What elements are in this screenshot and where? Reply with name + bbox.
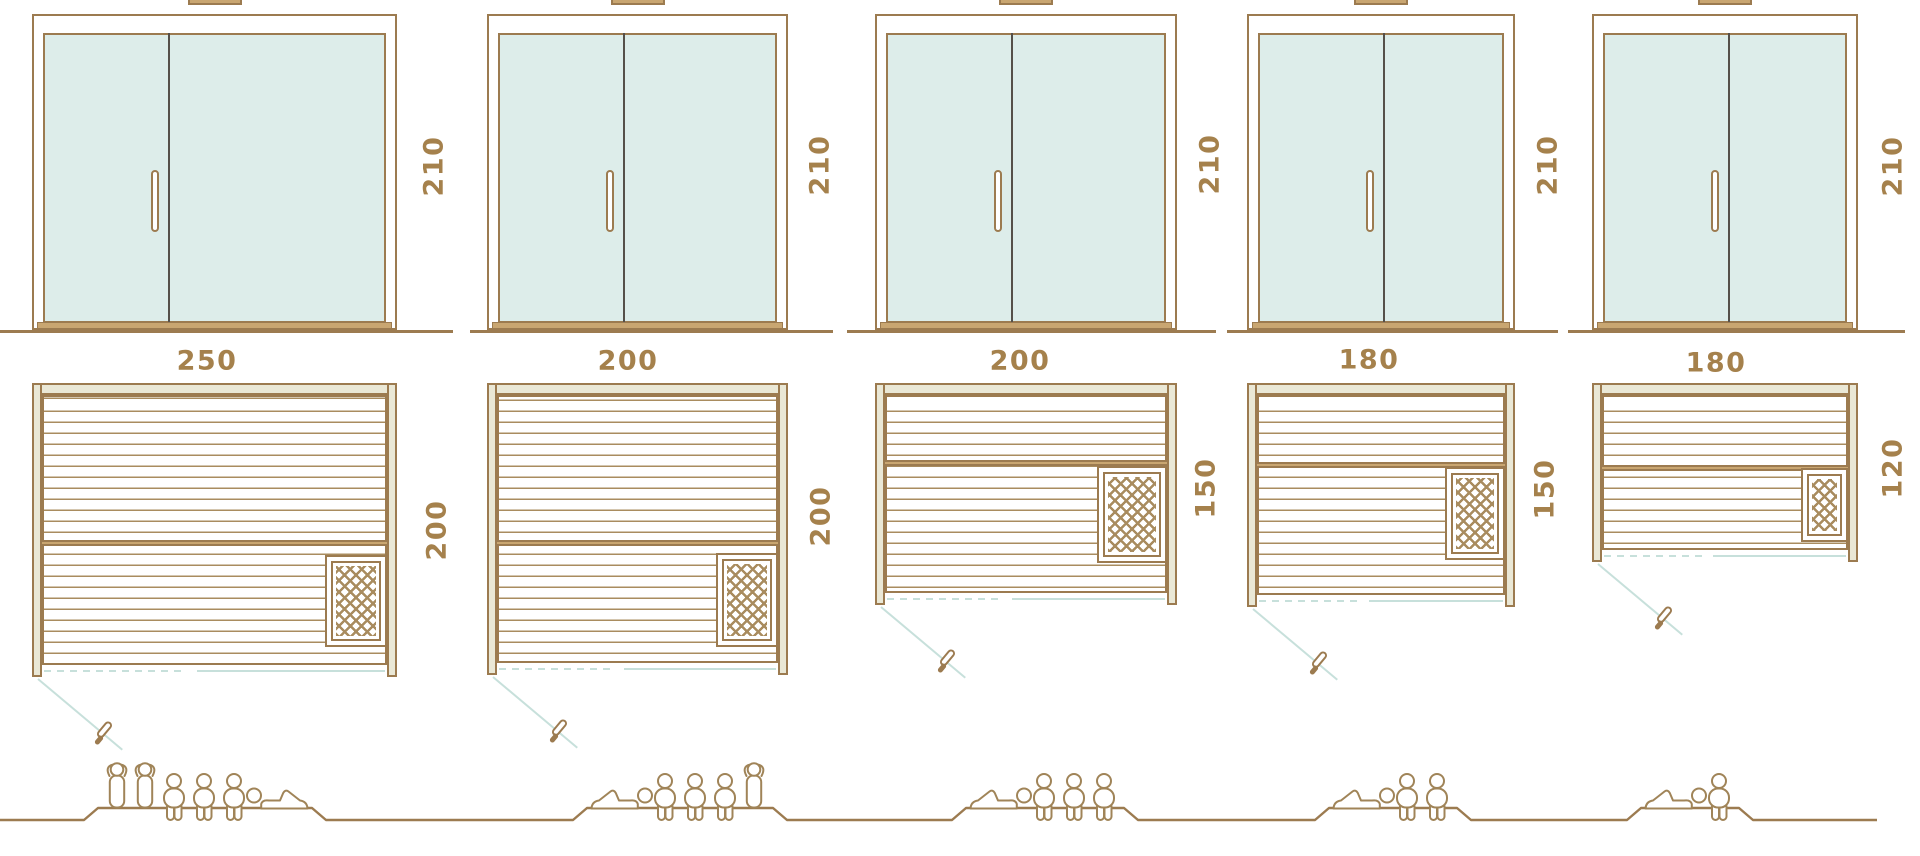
door-sill bbox=[37, 322, 392, 329]
door-leaf-divider bbox=[1011, 33, 1013, 323]
capacity-group-4-persons bbox=[845, 760, 1222, 856]
bench-edge bbox=[42, 540, 387, 546]
person-sitting-icon bbox=[164, 774, 184, 820]
capacity-group-6-persons bbox=[0, 760, 460, 856]
bench-edge bbox=[497, 540, 778, 546]
door-leaf-divider bbox=[1383, 33, 1385, 323]
plan-top-wall bbox=[32, 383, 397, 395]
handle-nub bbox=[1654, 620, 1664, 631]
plan-left-wall bbox=[32, 383, 42, 677]
door-height-label: 210 bbox=[1195, 134, 1226, 195]
person-standing-icon bbox=[745, 763, 764, 807]
door-leaf-divider bbox=[168, 33, 170, 323]
person-lying-icon bbox=[971, 789, 1032, 809]
door-glass bbox=[886, 33, 1166, 323]
door-opening-dashed bbox=[1604, 555, 1706, 557]
door-opening-dashed bbox=[44, 670, 187, 672]
plan-depth-label: 150 bbox=[1191, 458, 1222, 519]
person-sitting-icon bbox=[1034, 774, 1054, 820]
person-sitting-icon bbox=[685, 774, 705, 820]
door-glass bbox=[1603, 33, 1847, 323]
door-swing-line bbox=[37, 678, 123, 750]
person-sitting-icon bbox=[1094, 774, 1114, 820]
plan-right-wall bbox=[1848, 383, 1858, 562]
door-leaf-divider bbox=[1728, 33, 1730, 323]
door-width-label: 180 bbox=[1686, 348, 1747, 379]
door-opening-dashed bbox=[499, 668, 615, 670]
roof-stub bbox=[999, 0, 1053, 5]
door-leaf-divider bbox=[623, 33, 625, 323]
person-lying-icon bbox=[247, 789, 308, 809]
capacity-group-5-persons bbox=[460, 760, 845, 856]
plan-right-wall bbox=[1167, 383, 1177, 605]
person-sitting-icon bbox=[1427, 774, 1447, 820]
ground-bench-line bbox=[845, 808, 1222, 820]
person-lying-icon bbox=[1646, 789, 1707, 809]
door-width-label: 250 bbox=[177, 346, 238, 377]
door-glass bbox=[1258, 33, 1504, 323]
person-sitting-icon bbox=[1064, 774, 1084, 820]
door-height-label: 210 bbox=[805, 135, 836, 196]
person-sitting-icon bbox=[224, 774, 244, 820]
door-swing-line bbox=[1252, 608, 1338, 680]
roof-stub bbox=[611, 0, 665, 5]
door-glass bbox=[43, 33, 386, 323]
door-swing-line bbox=[1597, 563, 1683, 635]
person-sitting-icon bbox=[655, 774, 675, 820]
plan-top-wall bbox=[875, 383, 1177, 395]
door-track-line bbox=[197, 670, 385, 672]
plan-right-wall bbox=[778, 383, 788, 675]
heater-grid-icon bbox=[1108, 477, 1156, 552]
heater-grid-icon bbox=[1456, 478, 1494, 549]
handle-nub bbox=[937, 663, 947, 674]
ground-line bbox=[1227, 330, 1558, 333]
ground-line bbox=[0, 330, 453, 333]
door-sill bbox=[880, 322, 1172, 329]
capacity-group-2-persons bbox=[1563, 760, 1920, 856]
roof-stub bbox=[188, 0, 242, 5]
plan-top-wall bbox=[1592, 383, 1858, 395]
capacity-group-3-persons bbox=[1222, 760, 1563, 856]
handle-nub bbox=[1309, 665, 1319, 676]
person-standing-icon bbox=[136, 763, 155, 807]
door-opening-dashed bbox=[887, 598, 1004, 600]
roof-stub bbox=[1698, 0, 1752, 5]
plan-left-wall bbox=[875, 383, 885, 605]
person-sitting-icon bbox=[194, 774, 214, 820]
plan-right-wall bbox=[1505, 383, 1515, 607]
roof-stub bbox=[1354, 0, 1408, 5]
door-height-label: 210 bbox=[419, 136, 450, 197]
handle-nub bbox=[549, 733, 559, 744]
door-track-line bbox=[1369, 600, 1503, 602]
door-handle bbox=[151, 170, 159, 232]
door-track-line bbox=[1012, 598, 1165, 600]
plan-depth-label: 150 bbox=[1530, 459, 1561, 520]
plan-left-wall bbox=[1592, 383, 1602, 562]
handle-nub bbox=[94, 735, 104, 746]
door-height-label: 210 bbox=[1533, 135, 1564, 196]
plan-top-wall bbox=[1247, 383, 1515, 395]
door-sill bbox=[1252, 322, 1510, 329]
person-sitting-icon bbox=[1709, 774, 1729, 820]
plan-depth-label: 200 bbox=[422, 500, 453, 561]
door-track-line bbox=[624, 668, 776, 670]
door-opening-dashed bbox=[1259, 600, 1361, 602]
heater-grid-icon bbox=[1812, 479, 1837, 531]
ground-bench-line bbox=[460, 808, 845, 820]
plan-top-wall bbox=[487, 383, 788, 395]
door-glass bbox=[498, 33, 777, 323]
sauna-sizes-diagram: 2502102002002102002002101501802101501802… bbox=[0, 0, 1920, 856]
plan-left-wall bbox=[1247, 383, 1257, 607]
plan-depth-label: 200 bbox=[806, 486, 837, 547]
ground-line bbox=[470, 330, 833, 333]
door-handle bbox=[994, 170, 1002, 232]
door-swing-line bbox=[880, 606, 966, 678]
door-handle bbox=[606, 170, 614, 232]
heater-grid-icon bbox=[336, 566, 376, 636]
door-handle bbox=[1711, 170, 1719, 232]
ground-line bbox=[847, 330, 1216, 333]
ground-line bbox=[1568, 330, 1905, 333]
door-swing-line bbox=[492, 676, 578, 748]
heater-grid-icon bbox=[727, 564, 767, 636]
door-sill bbox=[492, 322, 783, 329]
door-width-label: 200 bbox=[990, 346, 1051, 377]
person-sitting-icon bbox=[715, 774, 735, 820]
door-track-line bbox=[1713, 555, 1846, 557]
plan-right-wall bbox=[387, 383, 397, 677]
person-standing-icon bbox=[108, 763, 127, 807]
door-handle bbox=[1366, 170, 1374, 232]
plan-depth-label: 120 bbox=[1878, 438, 1909, 499]
door-height-label: 210 bbox=[1878, 136, 1909, 197]
door-width-label: 180 bbox=[1339, 345, 1400, 376]
plan-left-wall bbox=[487, 383, 497, 675]
ground-bench-line bbox=[1222, 808, 1563, 820]
door-width-label: 200 bbox=[598, 346, 659, 377]
person-sitting-icon bbox=[1397, 774, 1417, 820]
door-sill bbox=[1597, 322, 1853, 329]
person-lying-icon bbox=[1334, 789, 1395, 809]
person-lying-icon bbox=[592, 789, 653, 809]
